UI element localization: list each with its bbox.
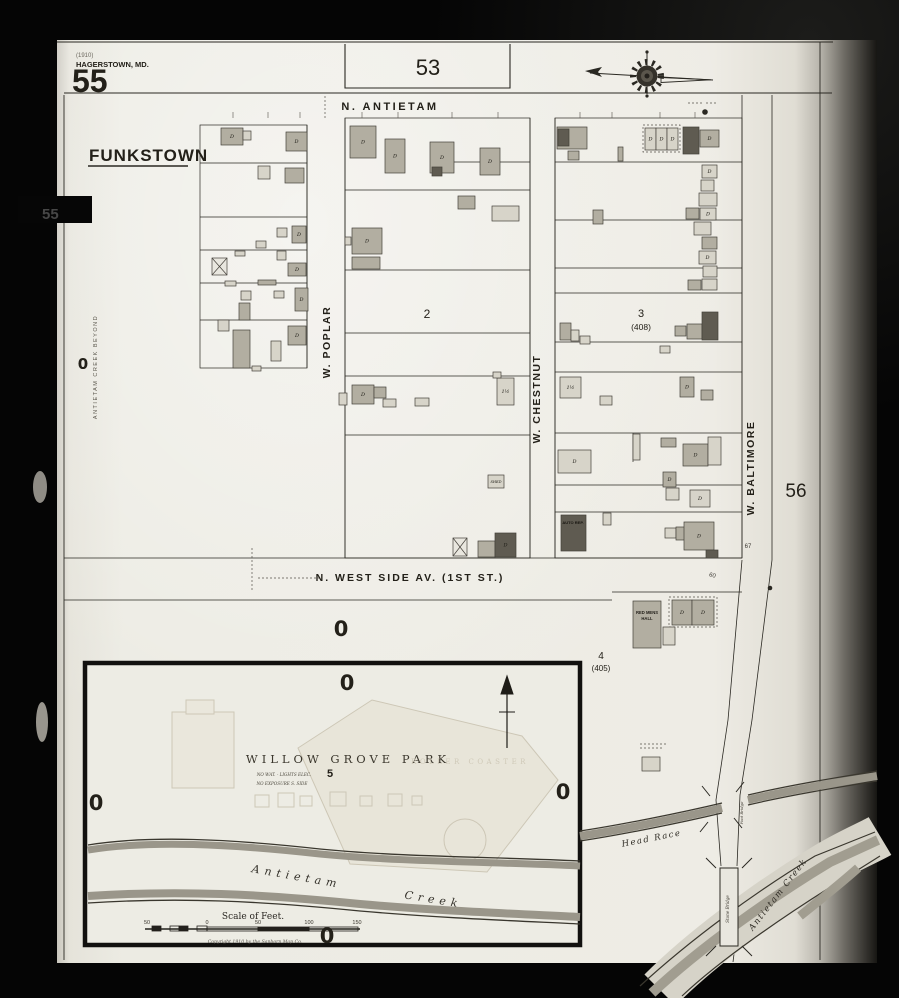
building [432, 167, 442, 176]
building: D [656, 128, 667, 150]
building [708, 437, 721, 465]
building: D [690, 490, 710, 507]
building: D [350, 126, 376, 158]
town-name: FUNKSTOWN [89, 146, 208, 165]
building [702, 312, 718, 340]
date-note: (1910) [76, 53, 93, 59]
building [252, 366, 261, 371]
building [580, 336, 590, 344]
margin-note: ANTIETAM CREEK BEYOND [93, 315, 99, 419]
building [258, 280, 276, 285]
street-w-baltimore: W. BALTIMORE [745, 421, 757, 516]
building: D [700, 208, 716, 220]
building [277, 228, 287, 237]
building: 1½ [497, 378, 514, 405]
building: SHED [488, 475, 504, 488]
building [593, 210, 603, 224]
building [458, 196, 475, 209]
building: D [221, 128, 243, 145]
building: D [292, 226, 306, 243]
scan-smudge [36, 702, 48, 742]
building [258, 166, 270, 179]
building [243, 131, 251, 140]
building [235, 251, 245, 256]
building: D [495, 533, 516, 557]
building: D [684, 522, 714, 550]
building [233, 330, 250, 368]
building: D [645, 128, 656, 150]
building: D [385, 139, 405, 173]
building [256, 241, 266, 248]
building [415, 398, 429, 406]
fence-dashes [252, 96, 717, 748]
building [345, 237, 351, 245]
stone-bridge [720, 868, 738, 946]
street-w-chestnut: W. CHESTNUT [531, 355, 543, 444]
building [561, 515, 586, 551]
building [701, 180, 714, 191]
building: D [699, 251, 716, 264]
building [706, 550, 718, 558]
building: D [288, 263, 306, 276]
adjacent-sheet-53: 53 [416, 55, 440, 80]
map-canvas: DDDDDDDDDDDD1½SHEDDDDDDDDD1½DDDDDDDD [0, 0, 899, 998]
building [352, 257, 380, 269]
building: D [480, 148, 500, 175]
building: D [683, 444, 708, 466]
building: D [352, 385, 374, 404]
building [699, 193, 717, 206]
building [571, 330, 579, 341]
street-west-side: N. WEST SIDE AV. (1ST ST.) [316, 572, 505, 584]
street-w-poplar: W. POPLAR [321, 306, 333, 378]
building [694, 222, 711, 235]
building: 1½ [560, 377, 581, 398]
building: D [672, 600, 692, 625]
block-outlines [200, 118, 742, 558]
survey-dot [702, 109, 708, 115]
survey-dot [768, 586, 773, 591]
building [642, 757, 660, 771]
house-number-60: 60 [708, 572, 717, 580]
house-number-67: 67 [745, 544, 752, 550]
building: D [663, 472, 676, 487]
building [493, 372, 501, 378]
building [600, 396, 612, 405]
building [661, 438, 676, 447]
building [453, 538, 467, 556]
building [686, 208, 699, 219]
left-edge-tab [18, 196, 92, 223]
building [339, 393, 347, 405]
building [687, 324, 702, 339]
building [478, 541, 495, 557]
building [271, 341, 281, 361]
zero-marker-margin: 0 [78, 355, 88, 373]
building [285, 168, 304, 183]
building [212, 258, 227, 275]
building [374, 387, 386, 398]
building: D [680, 377, 694, 397]
building [603, 513, 611, 525]
scan-smudge [33, 471, 47, 503]
building [675, 326, 686, 336]
building [568, 151, 579, 160]
building [225, 281, 236, 286]
building [702, 279, 717, 290]
frontage-ticks [233, 112, 695, 118]
building: D [702, 165, 717, 178]
building [633, 601, 661, 648]
building: D [288, 326, 306, 345]
block-3-alt: (408) [631, 322, 651, 332]
building [383, 399, 396, 407]
city-name: HAGERSTOWN, MD. [76, 60, 149, 69]
street-n-antietam: N. ANTIETAM [341, 101, 438, 113]
adjacent-sheet-56: 56 [785, 481, 806, 502]
block-4-number: 4 [598, 651, 604, 662]
block-4-alt: (405) [592, 664, 611, 673]
building [277, 251, 286, 260]
building: D [700, 130, 719, 147]
block-2-number: 2 [424, 307, 431, 321]
sanborn-map-scan: DDDDDDDDDDDD1½SHEDDDDDDDDD1½DDDDDDDD [0, 0, 899, 998]
building [665, 528, 676, 538]
building [702, 237, 717, 249]
block-3-number: 3 [638, 308, 644, 320]
building [560, 323, 571, 340]
park-inset [85, 663, 580, 945]
building: D [295, 288, 308, 311]
building [701, 390, 713, 400]
building: D [667, 128, 678, 150]
building [492, 206, 519, 221]
building [663, 627, 675, 645]
building [274, 291, 284, 298]
building [241, 291, 251, 300]
building [688, 280, 701, 290]
building [703, 266, 717, 277]
compass-rose-icon [585, 50, 713, 97]
building [666, 488, 679, 500]
building [239, 303, 250, 320]
building [683, 127, 699, 154]
building: D [352, 228, 382, 254]
building [618, 147, 623, 161]
building [660, 346, 670, 353]
building [218, 320, 229, 331]
building [558, 129, 569, 146]
building: D [692, 600, 714, 625]
building: D [558, 450, 591, 473]
building: D [286, 132, 307, 151]
building [633, 434, 640, 460]
sheet-number: 55 [72, 63, 108, 99]
zero-marker-1: 0 [334, 617, 349, 641]
